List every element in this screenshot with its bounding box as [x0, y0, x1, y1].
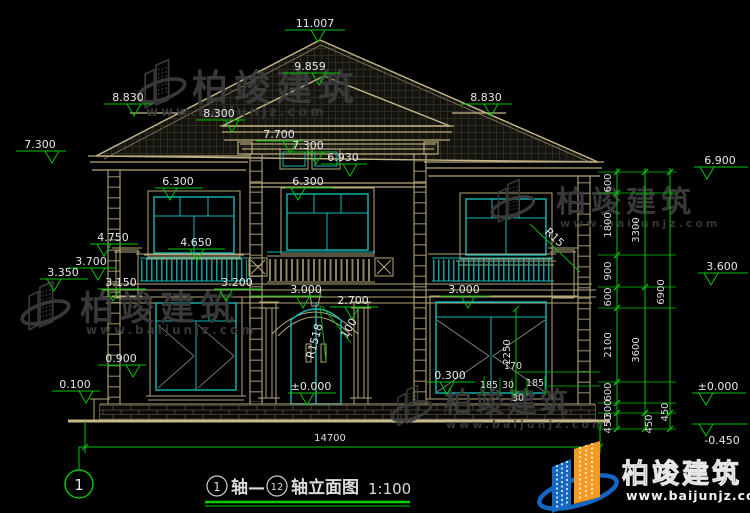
- dim-label: 30: [502, 380, 514, 391]
- dim-label: 1800: [603, 212, 614, 237]
- logo-building-orange: [574, 441, 600, 504]
- level-label: 0.100: [59, 378, 91, 391]
- dim-label: 2100: [603, 332, 614, 357]
- level-marker-ground: -0.450: [692, 424, 748, 447]
- level-label: 3.600: [706, 260, 738, 273]
- window-2f-center: [281, 188, 374, 254]
- dim-label: 600: [603, 382, 614, 401]
- level-label: -0.450: [704, 434, 739, 447]
- leader-annotations: R1518 100 R15: [304, 224, 580, 362]
- dim-label: 3600: [631, 337, 642, 362]
- title-axis-seg1: 轴—: [231, 477, 265, 498]
- level-marker-2f-tower-head: 6.300: [285, 175, 333, 200]
- logo-site-text: www.baijunjz.com: [626, 488, 750, 503]
- level-label: 0.900: [105, 352, 137, 365]
- dim-label: 450: [603, 414, 614, 433]
- level-label: 3.200: [221, 276, 253, 289]
- dim-label: 450: [644, 414, 655, 433]
- annotation-door-radius: R1518: [304, 322, 326, 360]
- level-label: 3.150: [105, 276, 137, 289]
- level-marker-left-eave: 7.300: [16, 138, 66, 163]
- level-marker-door-threshold: ±0.000: [288, 380, 336, 405]
- title-scale: 1:100: [368, 480, 411, 498]
- watermark-brand: 柏竣建筑: [556, 185, 696, 220]
- level-label: ±0.000: [291, 380, 332, 393]
- level-marker-ridge: 11.007: [285, 17, 345, 42]
- level-marker-slab-band: 3.350: [40, 266, 88, 291]
- level-marker-right-eave: 6.900: [694, 154, 748, 179]
- elevation-drawing-canvas: 柏竣建筑 www.baijunjz.com 柏竣建筑 www.baijunjz.…: [0, 0, 750, 513]
- level-label: 3.000: [448, 283, 480, 296]
- dim-total-width: 14700: [314, 433, 346, 444]
- level-label: 7.300: [292, 139, 324, 152]
- level-label: 7.700: [263, 128, 295, 141]
- brand-logo: 柏竣建筑 www.baijunjz.com: [536, 441, 750, 513]
- level-label: 9.859: [294, 60, 326, 73]
- level-label: 11.007: [296, 17, 335, 30]
- balcony-center: [249, 252, 393, 282]
- dim-label: 30: [512, 393, 524, 404]
- level-label: 8.830: [470, 91, 502, 104]
- dim-label: 170: [504, 361, 522, 372]
- logo-brand-text: 柏竣建筑: [622, 458, 742, 490]
- level-label: 3.350: [47, 266, 79, 279]
- dim-label: 185: [526, 378, 544, 389]
- level-marker-datum: ±0.000: [692, 380, 746, 405]
- watermark-brand: 柏竣建筑: [192, 68, 360, 109]
- axis-bubble-number: 1: [74, 476, 84, 494]
- level-label: 0.300: [434, 369, 466, 382]
- level-label: 4.750: [97, 231, 129, 244]
- title-axis-to: 12: [271, 482, 284, 493]
- level-label: 8.830: [112, 91, 144, 104]
- level-label: 3.700: [75, 255, 107, 268]
- watermark-site: www.baijunjz.com: [446, 418, 606, 431]
- level-label: 6.300: [292, 175, 324, 188]
- dim-label: 450: [660, 402, 671, 421]
- level-label: 2.700: [337, 294, 369, 307]
- level-marker-floor2: 3.600: [698, 260, 748, 285]
- dim-label: 600: [603, 173, 614, 192]
- level-label: 8.300: [203, 107, 235, 120]
- watermark-site: www.baijunjz.com: [146, 105, 327, 120]
- level-marker-door-arch: 2.700: [330, 294, 378, 319]
- level-marker-1f-right-head: 3.000: [440, 283, 490, 308]
- level-marker-1f-sill: 0.900: [98, 352, 146, 377]
- drawing-title: 1 轴— 12 轴立面图 1:100: [205, 476, 411, 506]
- level-label: 6.900: [704, 154, 736, 167]
- level-label: 3.000: [290, 283, 322, 296]
- dim-label: 3300: [631, 217, 642, 242]
- level-label: 6.300: [162, 175, 194, 188]
- dim-label: 6900: [656, 279, 667, 304]
- watermark-site: www.baijunjz.com: [86, 323, 257, 337]
- dim-label: 900: [603, 261, 614, 280]
- level-label: 6.930: [327, 151, 359, 164]
- level-label: 7.300: [24, 138, 56, 151]
- title-axis-from: 1: [213, 480, 221, 494]
- level-marker-2f-left-head: 6.300: [155, 175, 203, 200]
- dim-label: 600: [603, 287, 614, 306]
- level-label: 4.650: [180, 236, 212, 249]
- dim-label: 185: [480, 380, 498, 391]
- level-label: ±0.000: [698, 380, 739, 393]
- watermark-top: 柏竣建筑 www.baijunjz.com: [136, 60, 361, 120]
- title-axis-seg2: 轴立面图: [291, 477, 359, 498]
